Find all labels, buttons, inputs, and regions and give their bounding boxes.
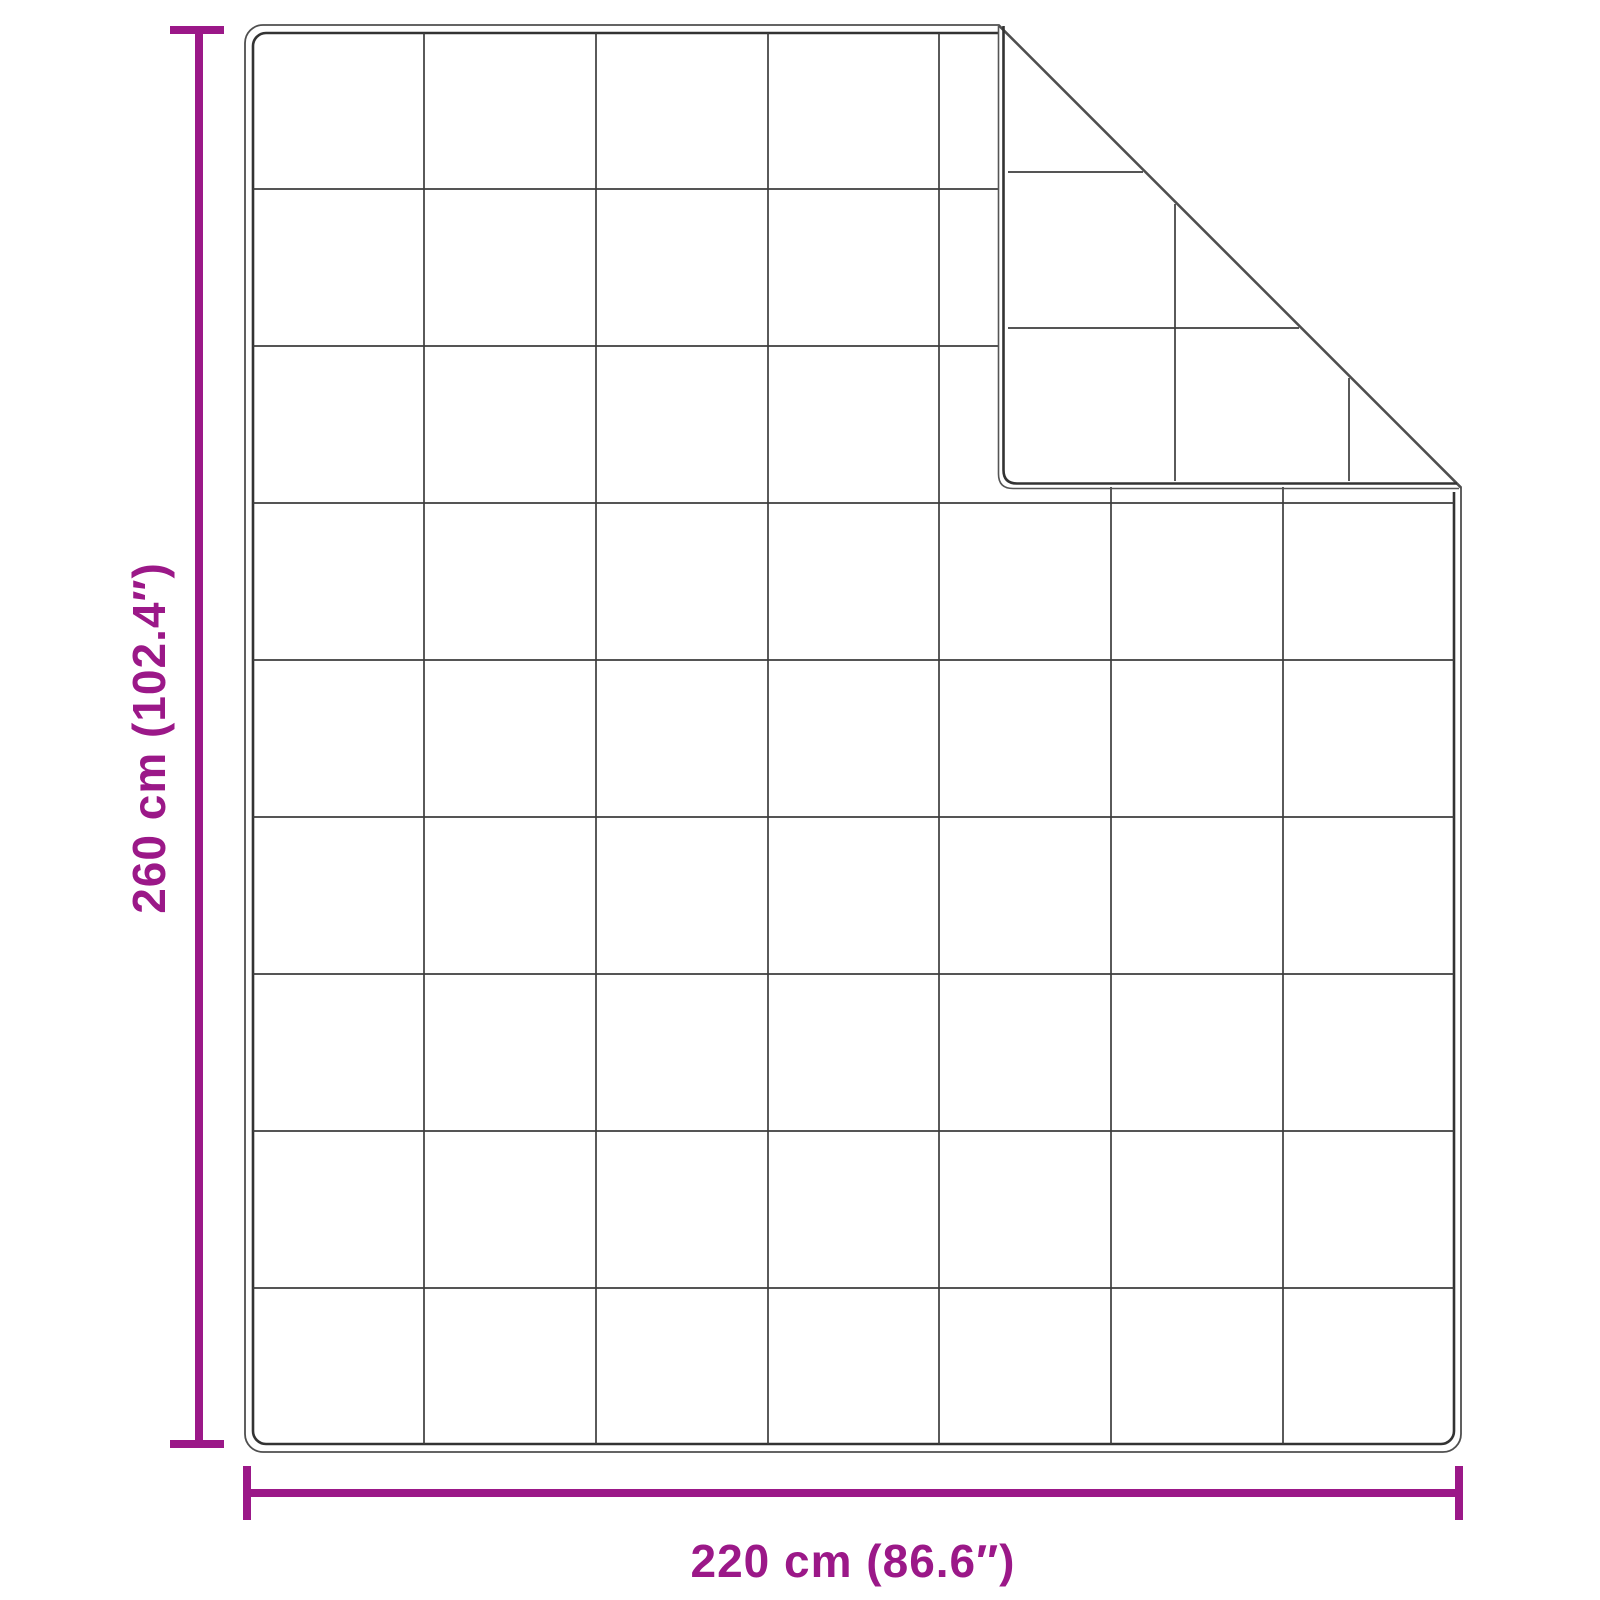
height-dimension-line [170,26,224,1448]
width-dimension-line [243,1466,1463,1520]
width-dimension-label: 220 cm (86.6″) [691,1534,1016,1588]
product-dimension-diagram: 260 cm (102.4″) 220 cm (86.6″) [0,0,1600,1600]
blanket-drawing [0,0,1600,1600]
height-dimension-label: 260 cm (102.4″) [122,562,176,914]
blanket-outline [245,25,1461,1452]
